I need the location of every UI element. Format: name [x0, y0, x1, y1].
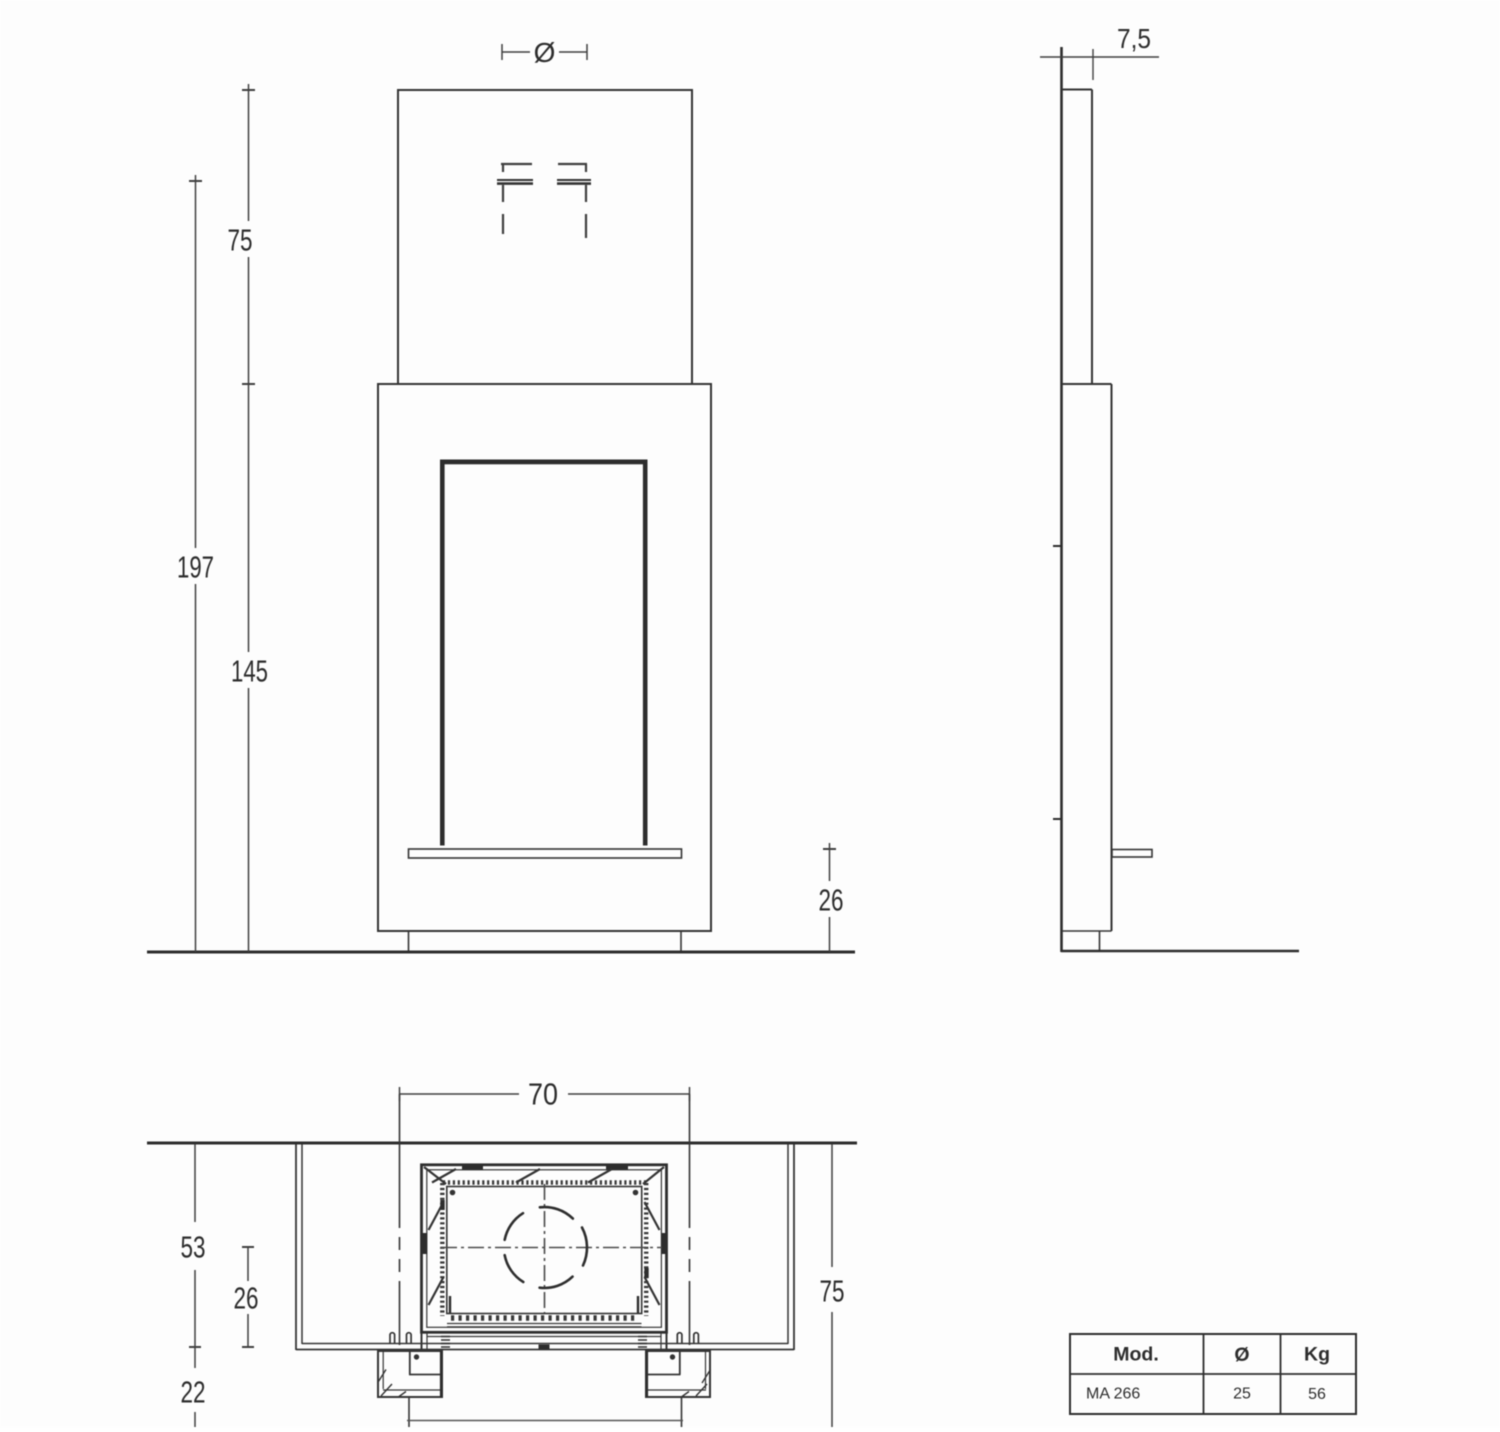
svg-text:MA 266: MA 266 [1086, 1386, 1140, 1403]
svg-text:26: 26 [234, 1281, 259, 1316]
svg-text:197: 197 [177, 550, 214, 585]
svg-text:Ø: Ø [534, 37, 556, 68]
svg-text:56: 56 [1308, 1386, 1326, 1403]
svg-text:26: 26 [819, 883, 844, 918]
svg-text:75: 75 [228, 223, 253, 258]
svg-text:22: 22 [181, 1375, 206, 1410]
svg-text:53: 53 [181, 1230, 206, 1265]
svg-text:70: 70 [528, 1077, 558, 1112]
svg-text:7,5: 7,5 [1117, 23, 1151, 54]
svg-text:Ø: Ø [1234, 1344, 1249, 1366]
svg-text:75: 75 [820, 1274, 845, 1309]
svg-text:Mod.: Mod. [1113, 1344, 1158, 1366]
svg-text:25: 25 [1233, 1386, 1251, 1403]
svg-text:Kg: Kg [1304, 1344, 1330, 1366]
svg-text:145: 145 [231, 654, 268, 689]
